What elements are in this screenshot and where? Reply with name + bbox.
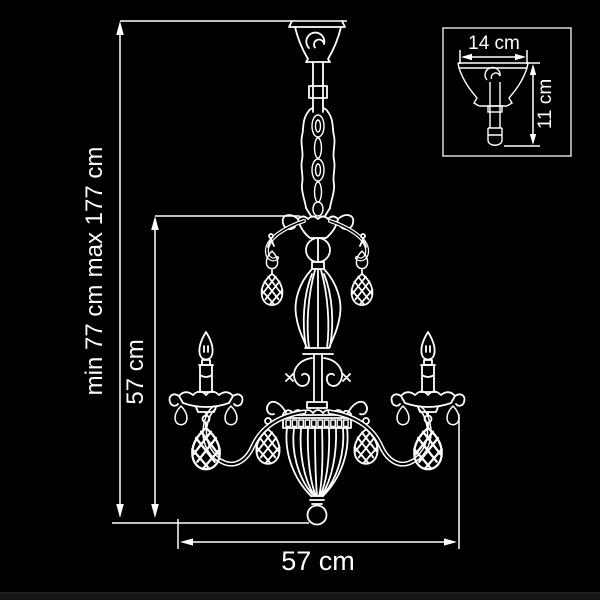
chain [301, 108, 334, 216]
label-width: 57 cm [281, 546, 355, 576]
basket [286, 428, 347, 504]
canopy [289, 21, 345, 62]
canopy-hook [306, 33, 324, 48]
dimension-diagram: max 177 cm min 77 cm 57 cm 57 cm [0, 0, 600, 600]
inset-width-label: 14 cm [468, 33, 520, 54]
label-min-height: min 77 cm [81, 285, 108, 396]
center-ball [306, 238, 330, 269]
inset-detail: 14 cm 11 cm [443, 28, 571, 156]
finial-ball [308, 506, 327, 525]
dimension-width [178, 414, 459, 549]
label-body-height: 57 cm [122, 339, 149, 404]
chandelier-drawing [170, 21, 465, 525]
suspension-rod [309, 62, 327, 112]
chain-links [312, 115, 324, 216]
label-max-height: max 177 cm [81, 147, 108, 278]
center-column [286, 269, 350, 408]
upper-arm-right [330, 221, 372, 305]
inset-mount-drawing [458, 63, 528, 145]
inset-height-label: 11 cm [535, 79, 556, 129]
diagram-canvas: max 177 cm min 77 cm 57 cm 57 cm [0, 0, 600, 600]
bottom-edge [0, 593, 600, 600]
